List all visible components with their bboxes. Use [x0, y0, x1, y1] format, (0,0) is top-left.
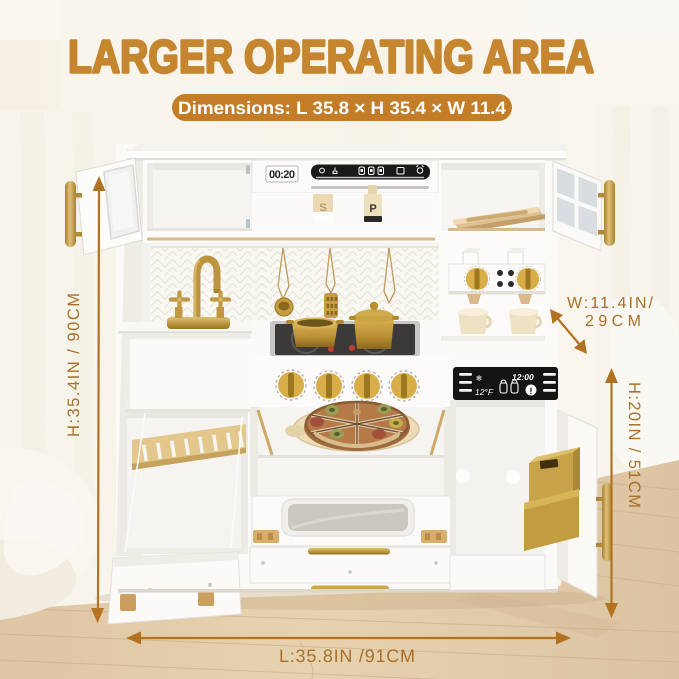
- svg-text:H:35.4IN / 90CM: H:35.4IN / 90CM: [65, 293, 83, 437]
- svg-text:12°F: 12°F: [475, 387, 494, 397]
- svg-text:00:20: 00:20: [269, 169, 295, 181]
- svg-text:❄: ❄: [476, 374, 483, 383]
- svg-text:L:35.8IN /91CM: L:35.8IN /91CM: [279, 646, 415, 666]
- svg-text:H:20IN / 51CM: H:20IN / 51CM: [625, 382, 643, 508]
- svg-text:W:11.4IN/: W:11.4IN/: [567, 295, 654, 312]
- svg-text:29CM: 29CM: [585, 313, 641, 330]
- svg-text:12:00: 12:00: [512, 372, 534, 382]
- svg-text:Dimensions: L 35.8 × H 35.4 ×: Dimensions: L 35.8 × H 35.4 × W 11.4: [178, 98, 506, 118]
- svg-text:P: P: [369, 203, 376, 215]
- svg-text:!: !: [530, 386, 533, 396]
- svg-text:LARGER OPERATING AREA: LARGER OPERATING AREA: [68, 31, 594, 83]
- svg-text:S: S: [319, 202, 326, 214]
